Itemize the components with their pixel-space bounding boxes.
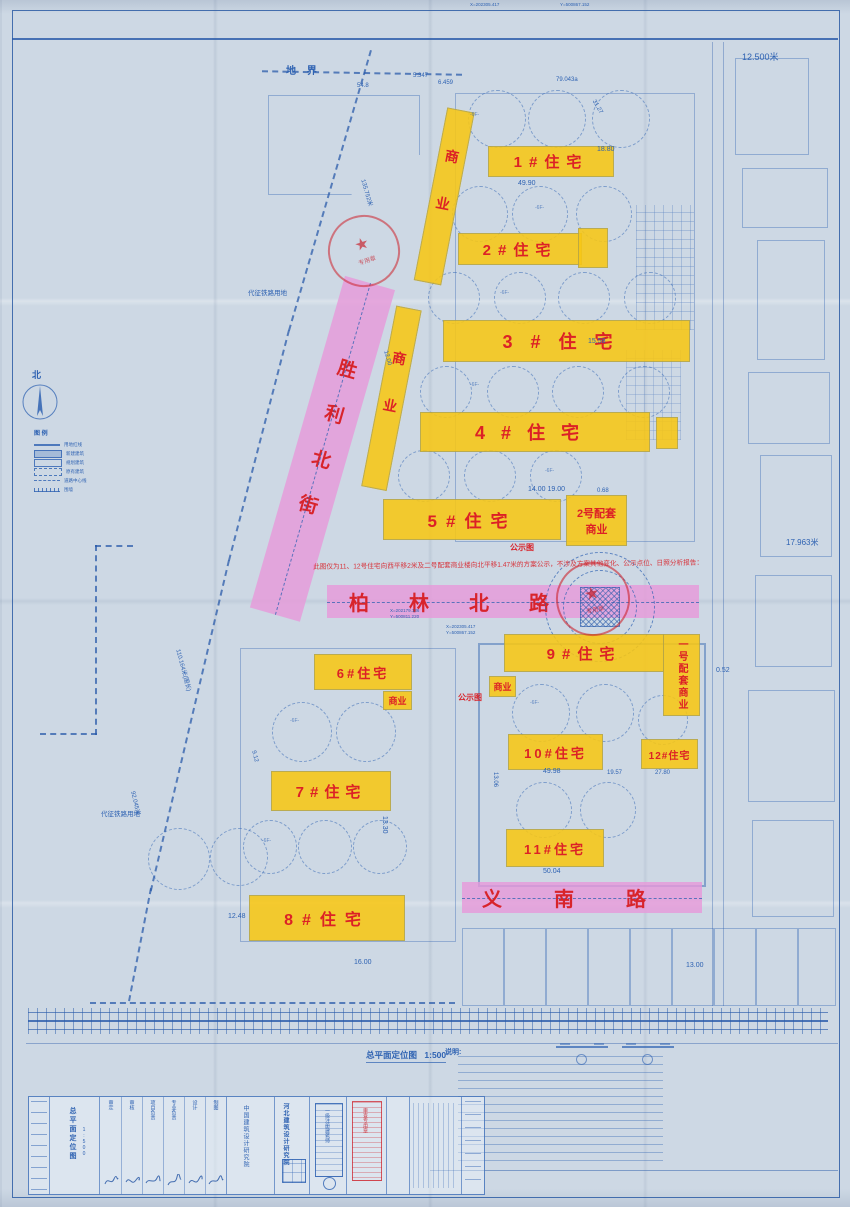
- building-5-label: 5#住宅: [428, 507, 517, 532]
- seal-star-icon: ★: [353, 235, 372, 255]
- dim-b5-gap: 14.00 19.00: [528, 486, 565, 493]
- commercial-small-9: 商业: [489, 676, 516, 697]
- building-12-label: 12#住宅: [649, 747, 691, 762]
- existing-building: [757, 240, 825, 360]
- drawing-scale-text: 1:500: [424, 1050, 446, 1060]
- road-section-diagram: [556, 1040, 608, 1068]
- tree-circle: [420, 366, 472, 418]
- site-boundary-dashed: [95, 545, 133, 547]
- signature-scribble: [145, 1174, 161, 1188]
- dim-misc-2: 6.459: [438, 80, 453, 86]
- signature-role: 设计: [192, 1100, 199, 1110]
- drawing-title-label: 总平面定位图 1:500: [366, 1049, 446, 1063]
- building-6-label: 6#住宅: [337, 663, 389, 682]
- titleblock-institute: 河北建筑设计研究院: [281, 1103, 290, 1166]
- floor-tag: -6F-: [545, 468, 554, 474]
- titleblock-divider: [409, 1097, 410, 1194]
- legend-item-label: 新建建筑: [66, 451, 84, 457]
- existing-building: [742, 168, 828, 228]
- red-stamp-text: 审查专用章: [362, 1108, 369, 1133]
- tree-circle: [210, 828, 268, 886]
- coord-label: Y=500811.220: [390, 614, 419, 619]
- north-compass-icon: [20, 382, 60, 422]
- tree-circle: [558, 272, 610, 324]
- tree-circle: [148, 828, 210, 890]
- building-12-residence: 12#住宅: [641, 739, 698, 769]
- drawing-title-text: 总平面定位图: [366, 1050, 417, 1060]
- existing-building: [748, 372, 830, 444]
- floor-tag: -6F-: [262, 838, 271, 844]
- commercial-small-6: 商业: [383, 691, 412, 710]
- tree-circle: [298, 820, 352, 874]
- dim-w12: 27.80: [655, 770, 670, 776]
- building-8-residence: 8#住宅: [249, 895, 405, 941]
- legend-item-label: 原有建筑: [66, 469, 84, 475]
- floor-tag: -6F-: [530, 700, 539, 706]
- legend-sample-box-open: [34, 459, 62, 467]
- cert-stamp-text: 一级注册建筑师: [324, 1108, 331, 1143]
- dim-b11-width: 50.04: [543, 868, 561, 875]
- building-8-label: 8#住宅: [284, 906, 370, 930]
- legend-row: 新建建筑: [34, 449, 144, 458]
- dim-misc-1: 5.347: [413, 73, 428, 79]
- cert-stamp-round-seal-icon: [323, 1177, 336, 1190]
- tree-circle: [552, 366, 604, 418]
- street-line-right-2: [723, 42, 724, 1006]
- dim-bottom-2: 13.00: [686, 962, 704, 969]
- building-2-label: 2#住宅: [483, 239, 558, 260]
- building-7-label: 7#住宅: [296, 781, 367, 802]
- building-11-label: 11#住宅: [524, 839, 586, 858]
- dim-l8: 12.48: [228, 913, 246, 920]
- titleblock-divider: [49, 1097, 50, 1194]
- titleblock-partner-institute: 中国建筑设计研究院: [241, 1105, 250, 1168]
- building-11-residence: 11#住宅: [506, 829, 604, 867]
- notes-text-lines: [458, 1056, 663, 1166]
- substation-box: [578, 228, 608, 268]
- building-10-residence: 10#住宅: [508, 734, 603, 770]
- floor-tag: -6F-: [535, 205, 544, 211]
- signature-role: 审定: [108, 1100, 115, 1110]
- land-boundary-label: 地 界: [286, 62, 321, 77]
- titleblock-scale: 1:500: [81, 1127, 87, 1157]
- signature-role: 审核: [129, 1100, 136, 1110]
- existing-house-row: [546, 928, 588, 1006]
- road-yinan-road: 义南路: [462, 882, 702, 913]
- existing-building: [748, 690, 835, 802]
- legend-row: 原有建筑: [34, 467, 144, 476]
- commercial-annex-2-label-line2: 商业: [586, 521, 608, 537]
- dim-l10: 13.06: [492, 772, 498, 787]
- signature-cell: 项目负责: [143, 1097, 164, 1194]
- existing-building: [735, 58, 809, 155]
- coord-label: X=202305.417: [446, 624, 475, 629]
- site-boundary-dashed: [95, 545, 97, 735]
- commercial-small-6-label: 商业: [388, 694, 406, 707]
- floor-tag: -6F-: [500, 290, 509, 296]
- existing-house-row: [630, 928, 672, 1006]
- building-1-label: 1#住宅: [514, 151, 589, 172]
- legend-row: 道路中心线: [34, 476, 144, 485]
- floor-tag: -6F-: [470, 112, 479, 118]
- legend: 图 例 用地红线 新建建筑 规划建筑 原有建筑 道路中心线 围墙: [34, 428, 144, 494]
- road-yinan-label: 义南路: [462, 883, 698, 912]
- signature-cell: 审核: [122, 1097, 143, 1194]
- dim-l7: 13.30: [381, 816, 388, 834]
- building-5-residence: 5#住宅: [383, 499, 561, 540]
- street-line-right-1: [712, 42, 713, 1006]
- titleblock-divider: [226, 1097, 227, 1194]
- railway-land-label-top: 代征铁路用地: [248, 287, 287, 297]
- tree-circle: [624, 272, 676, 324]
- tree-circle: [592, 90, 650, 148]
- tree-circle: [528, 90, 586, 148]
- titleblock-divider: [309, 1097, 310, 1194]
- legend-sample-line: [34, 444, 60, 446]
- existing-building: [752, 820, 834, 917]
- coord-label: Y=500867.152: [560, 2, 589, 7]
- dim-right-mid: 17.963米: [786, 537, 818, 548]
- dim-b5-offset: 0.68: [597, 488, 609, 494]
- commercial-annex-2-label-line1: 2号配套: [577, 505, 616, 521]
- tree-circle: [353, 820, 407, 874]
- tree-circle: [272, 702, 332, 762]
- titleblock-divider: [346, 1097, 347, 1194]
- dim-b9-offset: 0.52: [716, 667, 730, 674]
- gongshitu-stamp: 公示图: [458, 692, 482, 703]
- signature-role: 专业负责: [171, 1100, 178, 1120]
- railway-land-label-bottom: 代征铁路用地: [101, 808, 140, 818]
- legend-title: 图 例: [34, 428, 144, 437]
- tree-circle: [398, 450, 450, 502]
- building-4-residence: 4#住宅: [420, 412, 650, 452]
- commercial-annex-2: 2号配套 商业: [566, 495, 627, 546]
- existing-building: [755, 575, 832, 667]
- dim-misc-4: 54.8: [357, 83, 369, 89]
- dim-b1-depth: 18.80: [597, 146, 615, 153]
- building-4-label: 4#住宅: [475, 419, 595, 445]
- railway-track: [28, 1008, 828, 1034]
- signature-role: 制图: [213, 1100, 220, 1110]
- titleblock-divider: [274, 1097, 275, 1194]
- legend-item-label: 道路中心线: [64, 478, 87, 484]
- coord-label: X=202305.417: [470, 2, 499, 7]
- dim-top-right: 12.500米: [742, 50, 779, 63]
- legend-sample-box-filled: [34, 450, 62, 458]
- signature-role: 项目负责: [150, 1100, 157, 1120]
- floor-tag: -6F-: [470, 382, 479, 388]
- building-2-residence: 2#住宅: [458, 233, 582, 265]
- existing-house-row: [798, 928, 836, 1006]
- legend-item-label: 用地红线: [64, 442, 82, 448]
- dim-bottom-1: 16.00: [354, 959, 372, 966]
- scanned-site-plan-sheet: 胜利北街 柏林北路 义南路 1#住宅 2#住宅 3#住宅 4#住宅 5#住宅 2…: [0, 0, 850, 1207]
- building-9-residence: 9#住宅: [504, 634, 664, 672]
- legend-sample-dashdot: [34, 480, 60, 481]
- tree-circle: [494, 272, 546, 324]
- commercial-small-9-label: 商业: [493, 680, 511, 693]
- review-red-stamp: 审查专用章: [352, 1101, 382, 1181]
- existing-house-row: [588, 928, 630, 1006]
- tree-circle: [464, 450, 516, 502]
- signature-scribble: [187, 1174, 203, 1188]
- legend-sample-box-dashed: [34, 468, 62, 476]
- title-block: 总平面定位图 1:500 审定 审核 项目负责 专业负责 设计: [28, 1096, 485, 1195]
- site-boundary-dashed: [90, 1002, 455, 1004]
- legend-sample-fence: [34, 488, 60, 492]
- tree-circle: [487, 366, 539, 418]
- existing-house-row: [462, 928, 504, 1006]
- site-boundary-dashed: [40, 733, 97, 735]
- dim-b1-width: 49.90: [518, 180, 536, 187]
- dim-b3-depth: 15.58: [588, 338, 606, 345]
- tree-circle: [618, 366, 670, 418]
- titleblock-top-line: [430, 1170, 838, 1171]
- top-heavy-line: [12, 38, 838, 40]
- legend-row: 规划建筑: [34, 458, 144, 467]
- building-3-residence: 3#住宅: [443, 320, 690, 362]
- commercial-annex-1-label: 一号配套商业: [674, 639, 689, 711]
- titleblock-edge-rows: [465, 1101, 481, 1190]
- titleblock-signatures: 审定 审核 项目负责 专业负责 设计 制图: [101, 1097, 226, 1194]
- building-6-residence: 6#住宅: [314, 654, 412, 690]
- dim-top-width: 79.043a: [556, 77, 578, 83]
- titleblock-micro-notes: [413, 1103, 457, 1188]
- coord-label: Y=500867.152: [446, 630, 475, 635]
- existing-house-row: [756, 928, 798, 1006]
- seal-star-icon: ★: [583, 583, 601, 603]
- titleblock-divider: [99, 1097, 100, 1194]
- building-10-label: 10#住宅: [524, 743, 587, 762]
- signature-cell: 审定: [101, 1097, 122, 1194]
- titleblock-index-column: [31, 1101, 47, 1190]
- commercial-annex-1: 一号配套商业: [663, 634, 700, 716]
- seal-caption: 专用章: [357, 253, 377, 267]
- plan-bottom-line: [26, 1043, 838, 1044]
- building-1-residence: 1#住宅: [488, 146, 614, 177]
- legend-item-label: 围墙: [64, 487, 73, 493]
- building-9-label: 9#住宅: [547, 643, 622, 664]
- institute-square-seal-icon: [282, 1159, 306, 1183]
- signature-scribble: [166, 1174, 182, 1188]
- titleblock-divider: [461, 1097, 462, 1194]
- signature-scribble: [124, 1174, 140, 1188]
- legend-row: 用地红线: [34, 440, 144, 449]
- substation-box: [656, 417, 678, 449]
- titleblock-drawing-name: 总平面定位图: [67, 1107, 77, 1161]
- dim-gap-10-12: 19.57: [607, 770, 622, 776]
- signature-scribble: [208, 1174, 224, 1188]
- signature-cell: 设计: [185, 1097, 206, 1194]
- tree-circle: [468, 90, 526, 148]
- floor-tag: -6F-: [290, 718, 299, 724]
- seal-caption: 专用章: [585, 603, 604, 616]
- signature-scribble: [103, 1174, 119, 1188]
- legend-row: 围墙: [34, 485, 144, 494]
- north-label: 北: [32, 368, 41, 381]
- registration-cert-stamp: 一级注册建筑师: [315, 1103, 343, 1177]
- north-compass: [20, 382, 60, 427]
- legend-item-label: 规划建筑: [66, 460, 84, 466]
- tree-circle: [336, 702, 396, 762]
- building-3-label: 3#住宅: [502, 328, 630, 354]
- signature-cell: 制图: [206, 1097, 226, 1194]
- gongshitu-stamp: 公示图: [510, 542, 534, 553]
- titleblock-divider: [386, 1097, 387, 1194]
- signature-cell: 专业负责: [164, 1097, 185, 1194]
- building-7-residence: 7#住宅: [271, 771, 391, 811]
- existing-house-row: [714, 928, 756, 1006]
- coord-label: X=202179.136: [390, 608, 419, 613]
- dim-b10-width: 49.98: [543, 768, 561, 775]
- existing-house-row: [504, 928, 546, 1006]
- road-section-diagram: [622, 1040, 674, 1068]
